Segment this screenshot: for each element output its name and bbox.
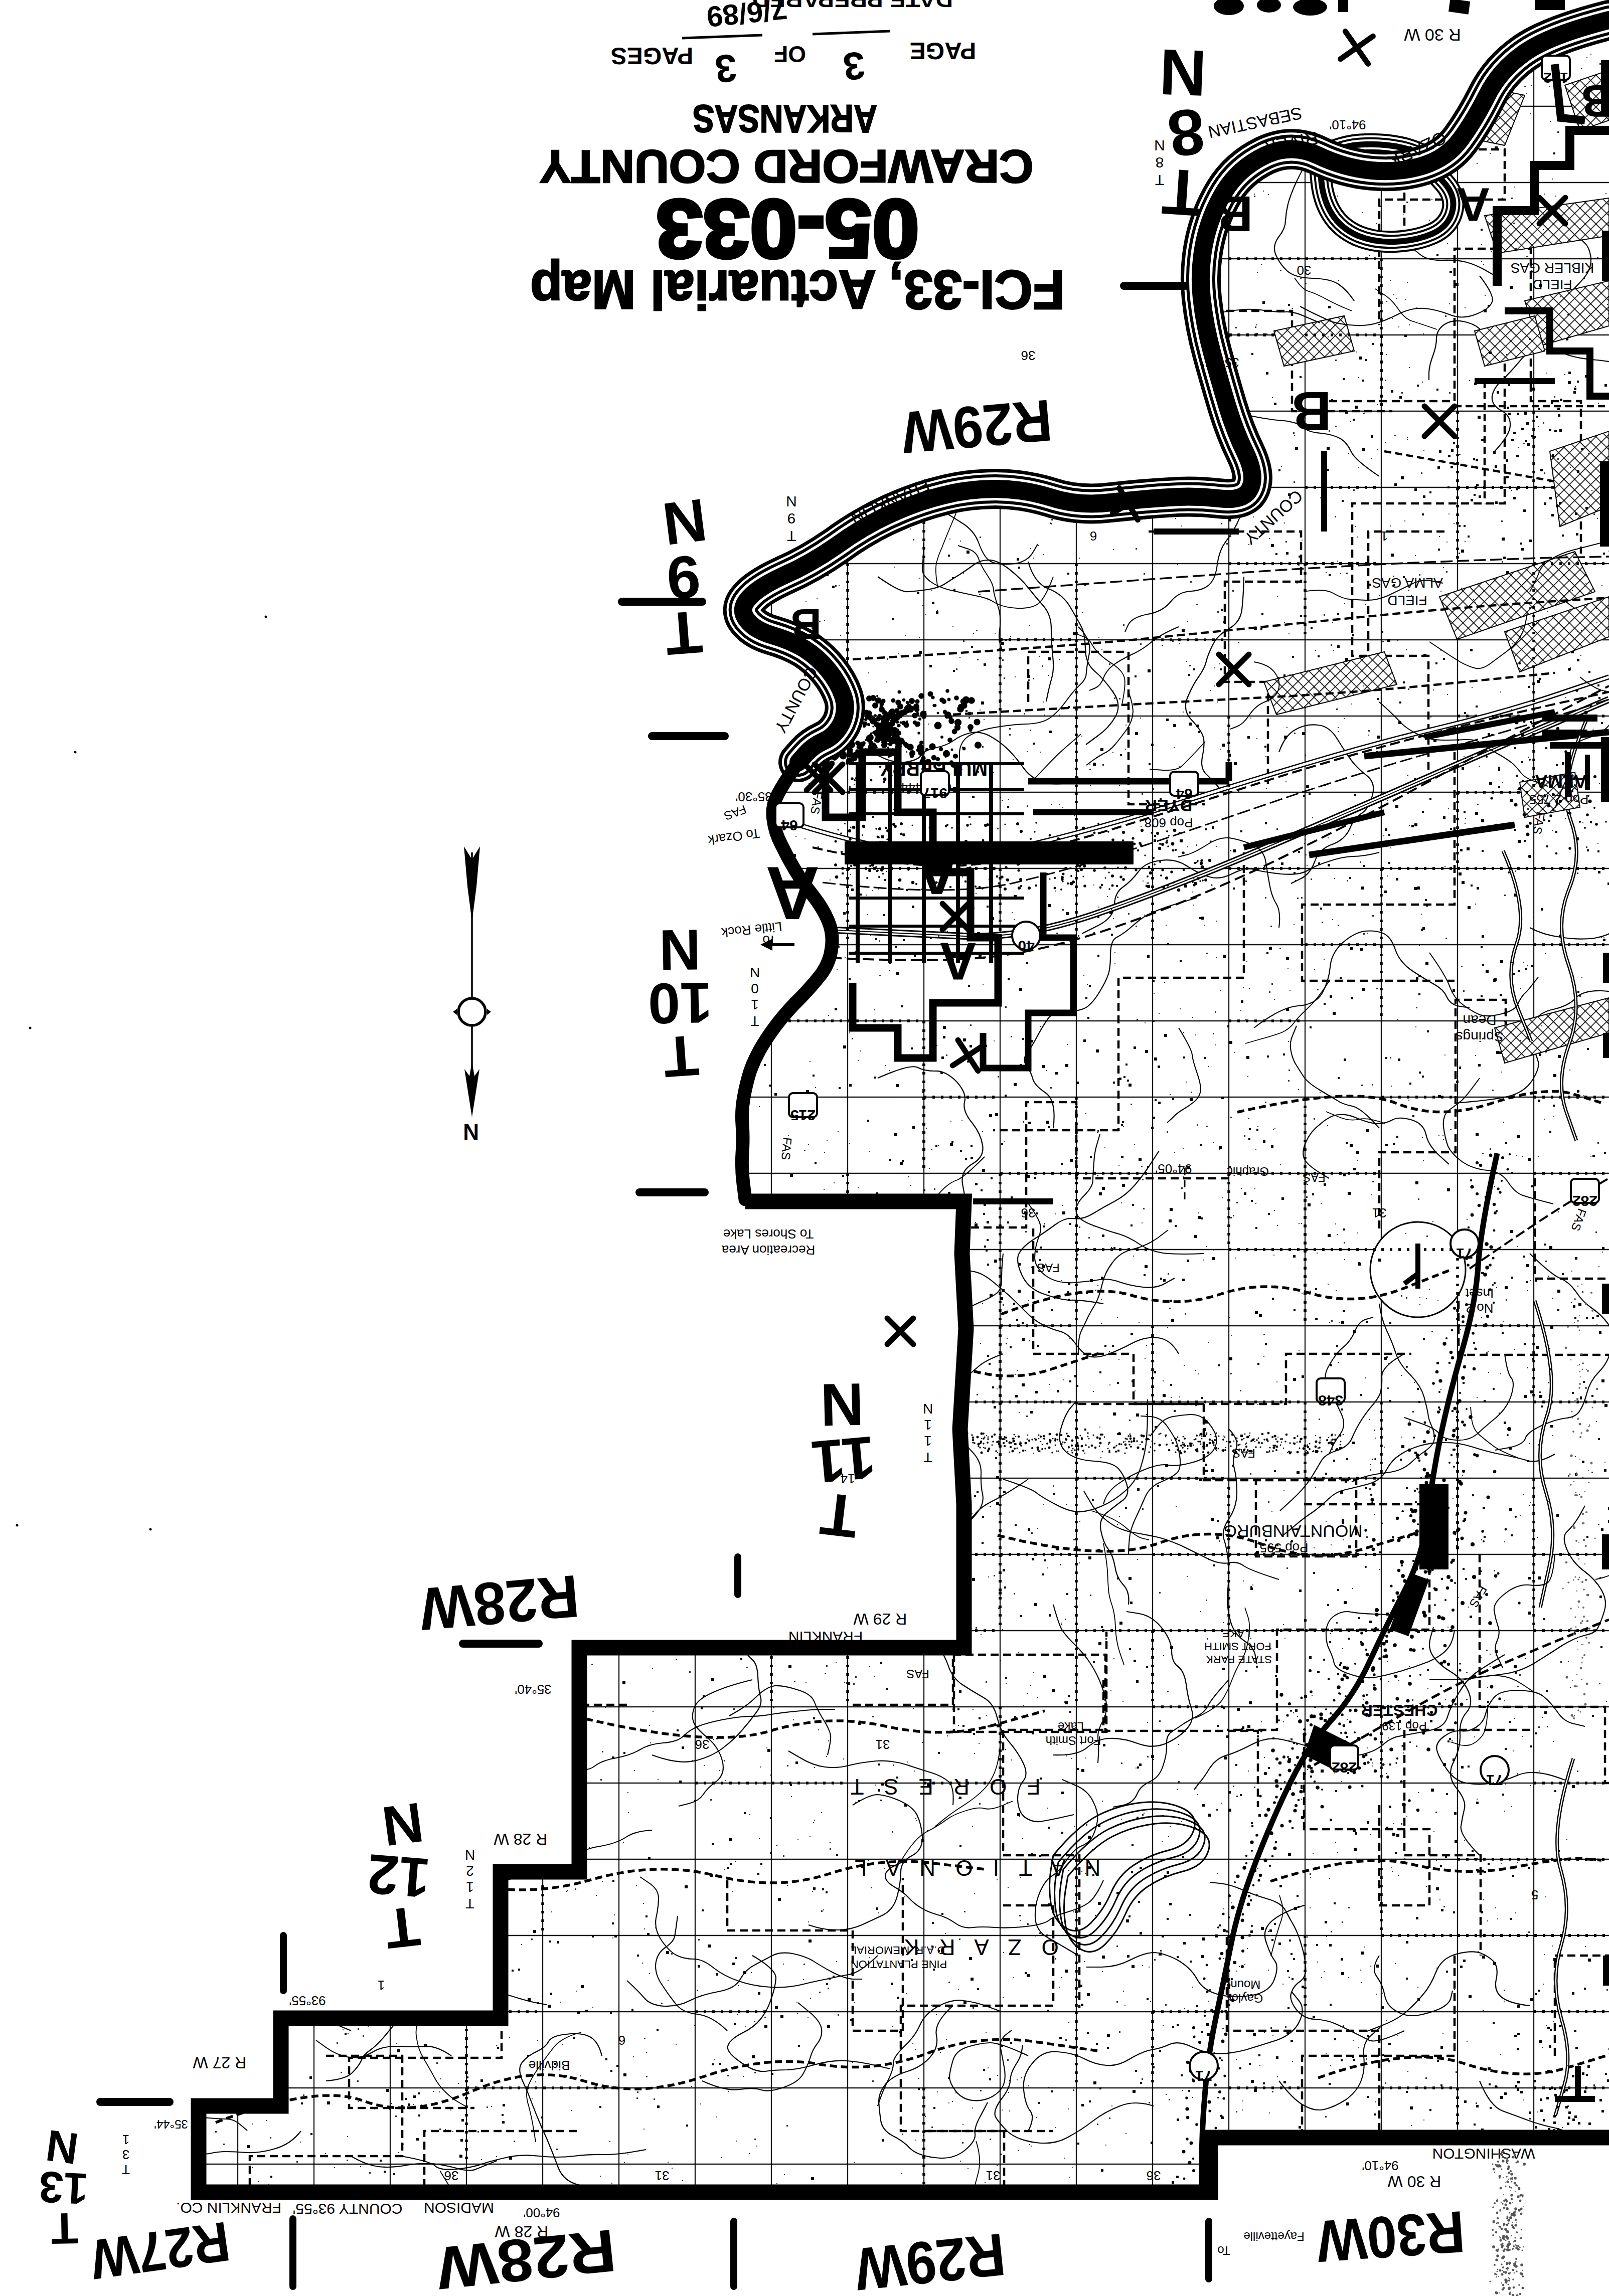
svg-text:To: To xyxy=(1217,2244,1230,2257)
svg-text:T: T xyxy=(923,1450,932,1465)
svg-text:6: 6 xyxy=(1090,528,1097,544)
svg-text:Dean: Dean xyxy=(1463,1012,1497,1028)
svg-text:Pop 595: Pop 595 xyxy=(1260,1540,1309,1555)
svg-text:64: 64 xyxy=(781,817,798,834)
svg-text:36: 36 xyxy=(695,1737,710,1752)
svg-text:T: T xyxy=(1155,172,1164,189)
svg-text:KIBLER GAS: KIBLER GAS xyxy=(1511,260,1594,276)
svg-text:FIELD: FIELD xyxy=(1532,277,1572,292)
svg-text:0: 0 xyxy=(751,981,759,996)
svg-text:3: 3 xyxy=(122,2147,129,2162)
svg-text:9: 9 xyxy=(787,510,796,527)
svg-text:T: T xyxy=(787,528,796,545)
svg-text:348: 348 xyxy=(1318,1392,1343,1409)
svg-text:Fayetteville: Fayetteville xyxy=(1243,2230,1304,2243)
svg-text:B: B xyxy=(1217,186,1253,242)
svg-text:R 30 W: R 30 W xyxy=(1404,26,1461,45)
svg-text:PINE PLANTATION: PINE PLANTATION xyxy=(851,1958,947,1971)
svg-text:6: 6 xyxy=(618,2033,625,2048)
svg-text:Pop 139: Pop 139 xyxy=(1382,1719,1426,1733)
svg-text:8: 8 xyxy=(1156,154,1164,171)
svg-text:31: 31 xyxy=(1372,1205,1387,1220)
svg-text:R 29 W: R 29 W xyxy=(853,1610,907,1628)
svg-text:35°44': 35°44' xyxy=(154,2117,188,2131)
svg-text:N: N xyxy=(465,1847,475,1863)
svg-text:No.2: No.2 xyxy=(1466,1301,1494,1316)
svg-text:1: 1 xyxy=(378,1978,385,1993)
svg-text:215: 215 xyxy=(790,1107,816,1124)
svg-text:Lake: Lake xyxy=(1058,1720,1084,1733)
svg-text:36: 36 xyxy=(1021,1205,1036,1220)
svg-text:5: 5 xyxy=(1531,1887,1538,1902)
svg-text:MOUNTAINBURG: MOUNTAINBURG xyxy=(1223,1522,1362,1541)
svg-text:R29W: R29W xyxy=(899,387,1055,466)
svg-text:93°55': 93°55' xyxy=(289,1993,326,2008)
svg-text:Pop 608: Pop 608 xyxy=(1145,815,1193,830)
svg-text:2: 2 xyxy=(466,1863,474,1879)
svg-text:Inset: Inset xyxy=(1465,1286,1494,1301)
svg-text:R 27 W: R 27 W xyxy=(193,2054,246,2072)
svg-text:N A T I O N A L: N A T I O N A L xyxy=(848,1856,1100,1880)
svg-text:35°40': 35°40' xyxy=(515,1682,551,1697)
svg-text:R 30 W: R 30 W xyxy=(1387,2173,1441,2191)
svg-text:94°10': 94°10' xyxy=(1329,117,1366,132)
svg-text:1: 1 xyxy=(122,2132,129,2147)
svg-text:FAS: FAS xyxy=(1232,1447,1255,1460)
svg-text:31: 31 xyxy=(986,2168,1001,2183)
svg-text:N: N xyxy=(750,965,760,980)
svg-text:T: T xyxy=(663,598,705,668)
svg-text:917: 917 xyxy=(922,785,947,802)
svg-text:T: T xyxy=(382,1894,423,1961)
svg-text:T: T xyxy=(817,1480,861,1551)
svg-text:R30W: R30W xyxy=(1315,2199,1467,2275)
svg-text:COUNTY 93°55': COUNTY 93°55' xyxy=(293,2201,403,2217)
svg-text:A: A xyxy=(939,932,977,990)
svg-text:ARKANSAS: ARKANSAS xyxy=(693,97,877,140)
svg-text:94°10': 94°10' xyxy=(1362,2158,1398,2173)
svg-text:F O R E S T: F O R E S T xyxy=(844,1775,1041,1799)
svg-text:D.A.R. MEMORIAL: D.A.R. MEMORIAL xyxy=(851,1944,945,1957)
svg-text:FORT SMITH: FORT SMITH xyxy=(1204,1640,1271,1653)
svg-text:Springs: Springs xyxy=(1456,1029,1504,1044)
svg-text:STATE PARK: STATE PARK xyxy=(1206,1653,1272,1666)
svg-text:31: 31 xyxy=(876,1737,890,1752)
svg-text:FAS: FAS xyxy=(1052,2189,1074,2202)
svg-text:T: T xyxy=(1160,154,1204,230)
svg-text:CHESTER: CHESTER xyxy=(1361,1701,1438,1719)
svg-text:PAGES: PAGES xyxy=(611,43,693,69)
svg-text:Recreation Area: Recreation Area xyxy=(721,1243,815,1258)
svg-text:1: 1 xyxy=(751,997,759,1012)
svg-text:35°30': 35°30' xyxy=(735,789,772,804)
svg-text:36: 36 xyxy=(444,2168,459,2183)
svg-text:71: 71 xyxy=(1486,1772,1503,1789)
svg-text:71: 71 xyxy=(1456,1246,1473,1262)
svg-text:36: 36 xyxy=(1021,348,1036,363)
svg-text:B: B xyxy=(1292,381,1331,442)
svg-text:282: 282 xyxy=(1332,1759,1357,1776)
svg-text:N: N xyxy=(1154,137,1165,154)
svg-text:Mount: Mount xyxy=(1227,1978,1260,1992)
svg-text:To Shores Lake: To Shores Lake xyxy=(723,1226,814,1242)
svg-text:ALMA: ALMA xyxy=(1535,771,1587,791)
svg-text:R 28 W: R 28 W xyxy=(495,2223,548,2241)
svg-text:R28W: R28W xyxy=(417,1562,582,1643)
svg-text:40: 40 xyxy=(1018,938,1034,954)
svg-text:30: 30 xyxy=(1297,263,1312,278)
svg-text:36: 36 xyxy=(1147,2168,1161,2183)
svg-text:1: 1 xyxy=(924,1417,932,1433)
svg-text:T: T xyxy=(750,1013,759,1029)
svg-text:1: 1 xyxy=(1381,528,1388,544)
svg-text:MADISON: MADISON xyxy=(424,2200,494,2216)
svg-text:T: T xyxy=(465,1896,474,1911)
svg-text:14: 14 xyxy=(841,1471,855,1486)
svg-text:FRANKLIN CO.: FRANKLIN CO. xyxy=(176,2200,281,2216)
svg-text:ALMA GAS: ALMA GAS xyxy=(1372,575,1443,591)
svg-text:T: T xyxy=(122,2162,130,2177)
svg-text:71: 71 xyxy=(1195,2068,1212,2084)
svg-text:FAS: FAS xyxy=(906,1667,929,1681)
svg-text:Graphic: Graphic xyxy=(1227,1165,1269,1178)
svg-text:Pop 2,755: Pop 2,755 xyxy=(1529,792,1589,807)
svg-text:94°00': 94°00' xyxy=(523,2205,560,2220)
svg-text:FCI-33, Actuarial Map: FCI-33, Actuarial Map xyxy=(530,259,1065,321)
svg-text:OF: OF xyxy=(774,41,806,67)
svg-text:31: 31 xyxy=(655,2168,670,2183)
svg-text:3: 3 xyxy=(713,46,739,91)
svg-text:N: N xyxy=(786,493,797,510)
svg-text:N: N xyxy=(923,1401,933,1417)
svg-text:R 28 W: R 28 W xyxy=(494,1830,547,1848)
svg-text:T: T xyxy=(661,1023,701,1090)
svg-text:T: T xyxy=(51,2203,79,2253)
svg-text:A: A xyxy=(1456,178,1491,231)
svg-text:35°25': 35°25' xyxy=(1202,355,1239,370)
svg-text:Fort Smith: Fort Smith xyxy=(1046,1734,1101,1747)
svg-text:3: 3 xyxy=(841,43,867,89)
svg-text:FAS: FAS xyxy=(1037,1261,1059,1275)
svg-text:A: A xyxy=(915,840,959,907)
svg-text:1: 1 xyxy=(924,1433,932,1449)
svg-text:PAGE: PAGE xyxy=(910,38,976,64)
svg-text:FAS: FAS xyxy=(779,1137,794,1161)
svg-text:B: B xyxy=(790,600,821,648)
svg-text:FRANKLIN: FRANKLIN xyxy=(788,1629,863,1645)
svg-text:FAS: FAS xyxy=(1303,1171,1325,1184)
svg-text:94°05': 94°05' xyxy=(1155,1161,1192,1176)
svg-text:1: 1 xyxy=(466,1879,474,1895)
svg-text:64: 64 xyxy=(1176,786,1193,802)
svg-text:N: N xyxy=(463,1120,479,1144)
svg-text:282: 282 xyxy=(1572,1193,1597,1209)
svg-text:FIELD: FIELD xyxy=(1387,593,1427,608)
svg-text:WASHINGTON: WASHINGTON xyxy=(1432,2146,1535,2162)
svg-text:Gaylor: Gaylor xyxy=(1228,1992,1263,2005)
svg-text:LAKE: LAKE xyxy=(1222,1627,1250,1640)
svg-text:Bidville: Bidville xyxy=(529,2058,570,2073)
